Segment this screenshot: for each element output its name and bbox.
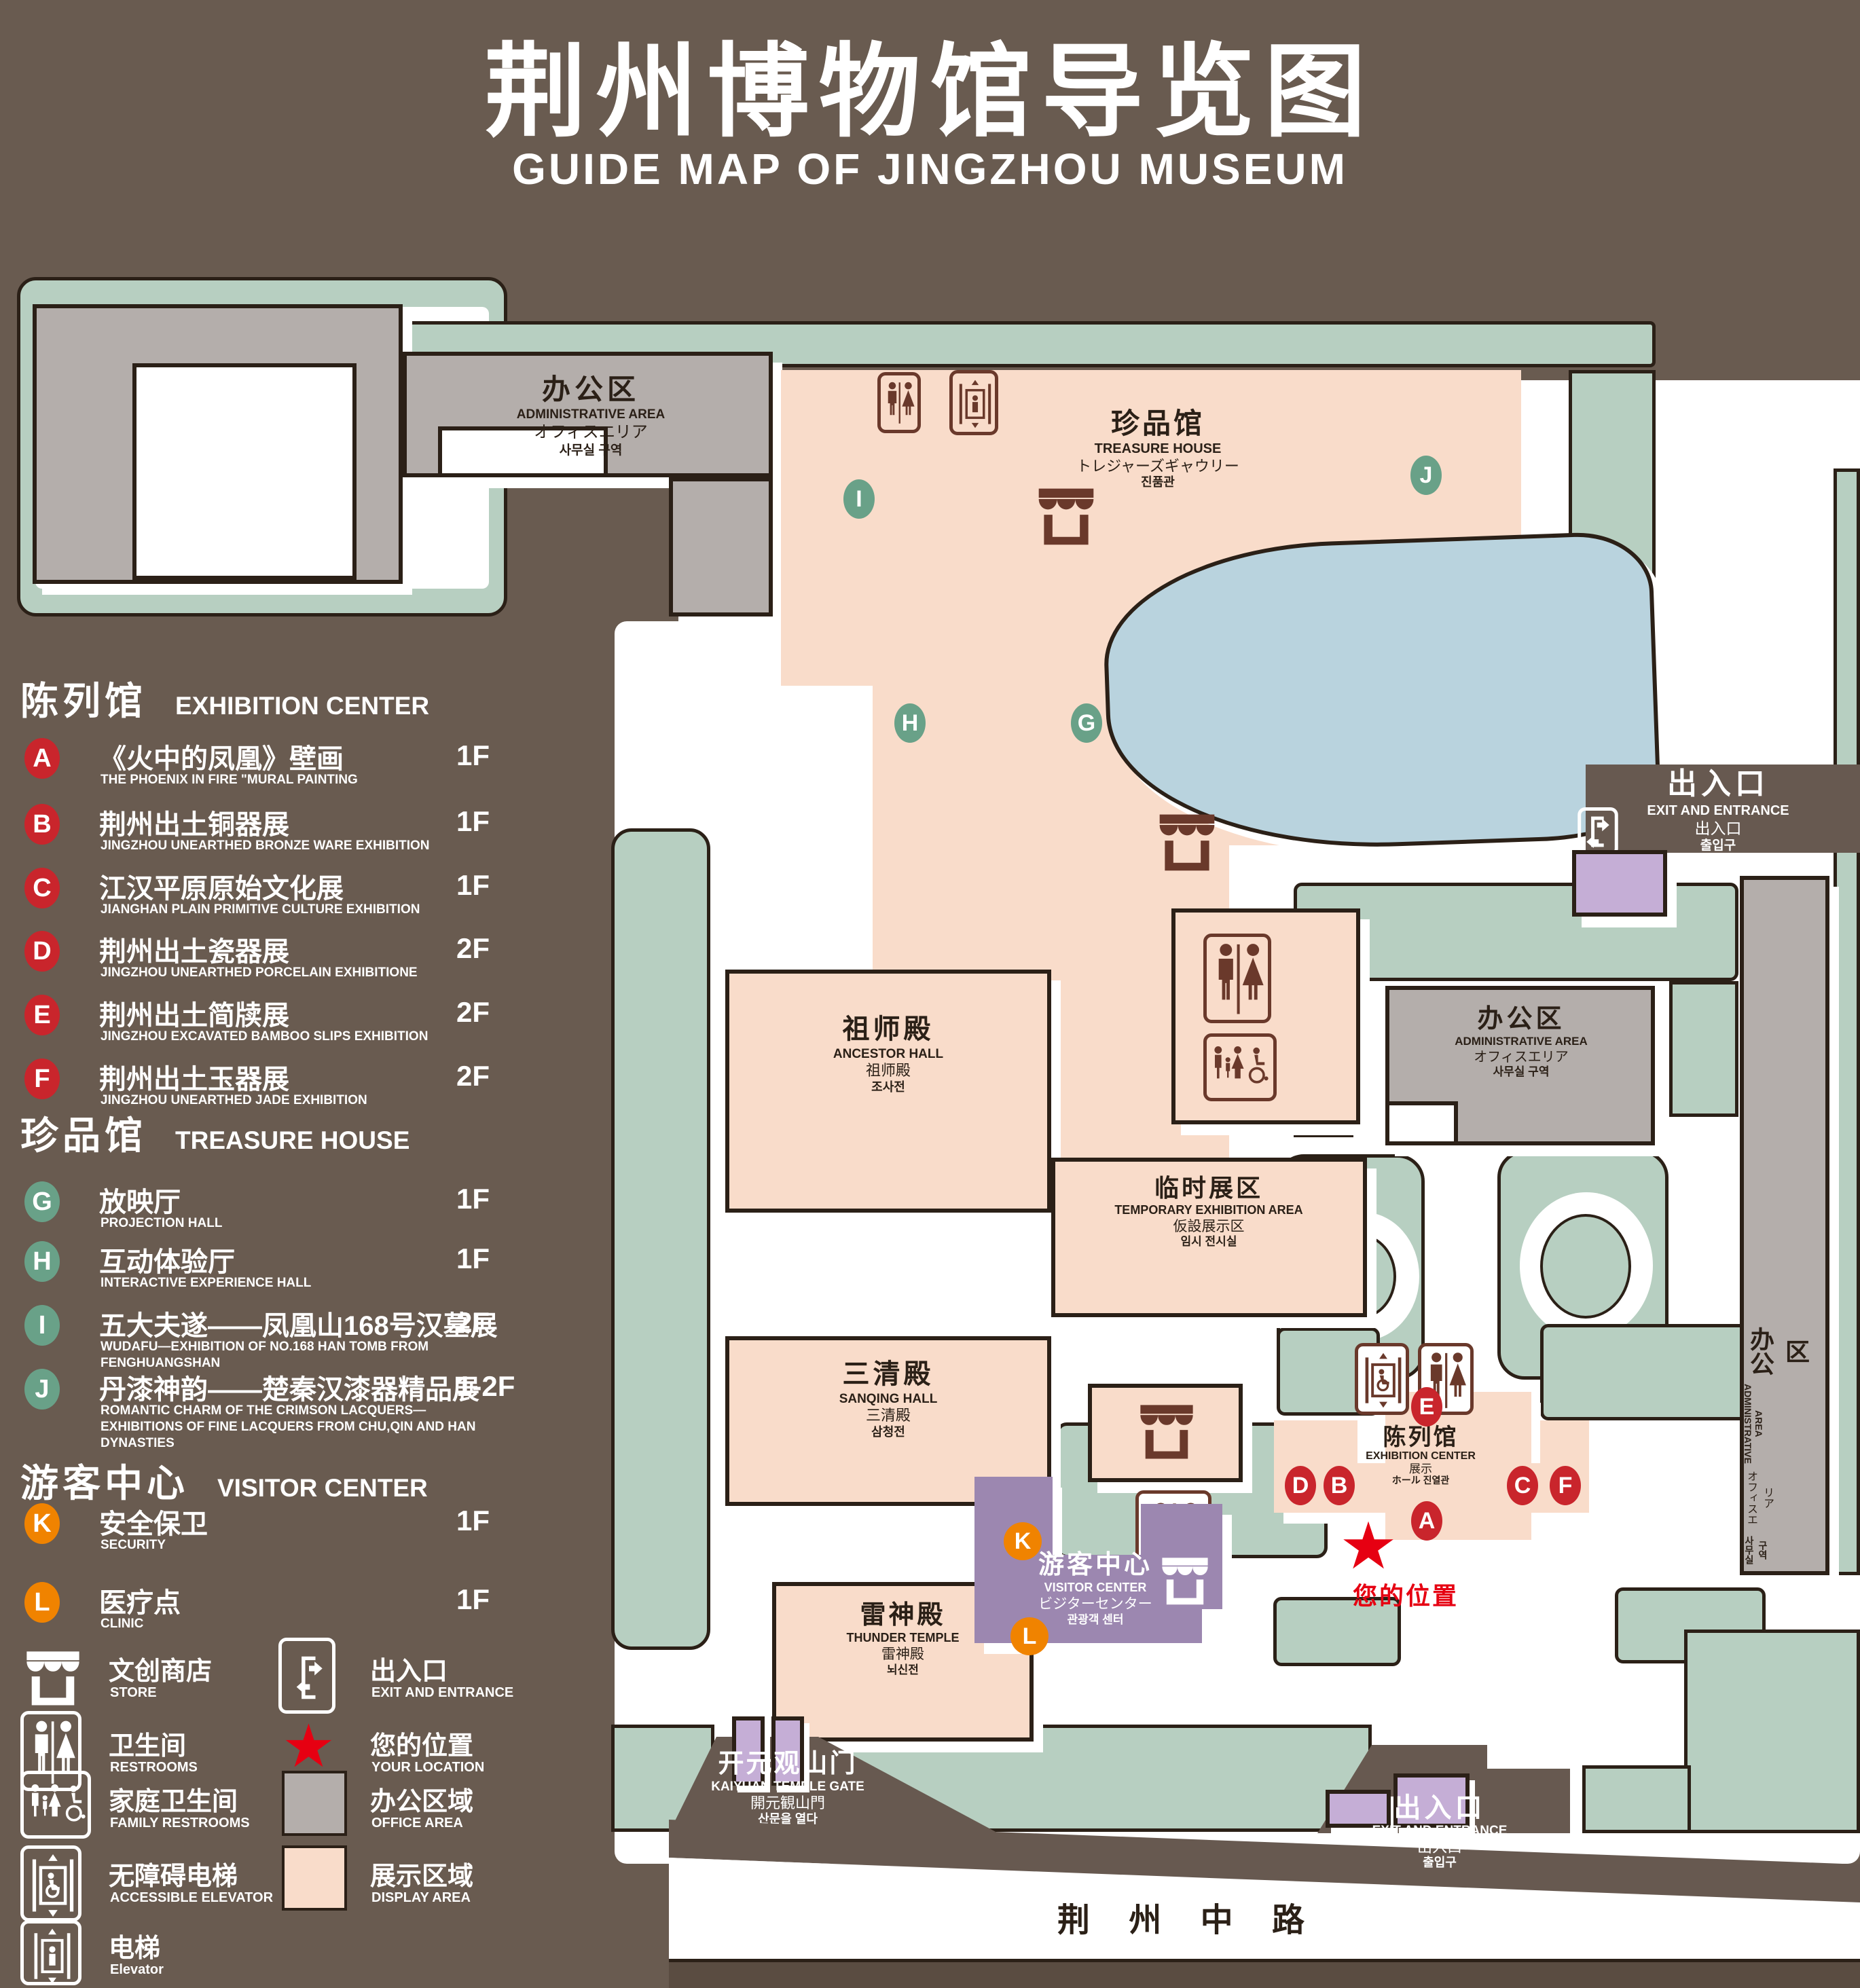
legend-section-treasure-header: 珍品馆TREASURE HOUSE [20,1105,409,1160]
building-admin-top-arm [669,477,773,616]
accessible-elevator-icon [1355,1343,1409,1415]
legend-item-b: B 荆州出土铜器展 JINGZHOU UNEARTHED BRONZE WARE… [20,803,523,868]
store-icon [1158,1553,1212,1608]
accessible-elevator-icon [20,1845,81,1921]
legend-item-i: I 五大夫遂——凤凰山168号汉墓展 WUDAFU—EXHIBITION OF … [20,1304,523,1369]
green-strip-admin-mid-top [1294,883,1738,981]
admin-top-label: 办公区 ADMINISTRATIVE AREA オフィスエリア 사무실 구역 [435,372,747,458]
marker-j: J [1410,456,1442,495]
marker-e: E [1411,1387,1442,1426]
gate-label: 开元观山门 KAIYUAN TEMPLE GATE 開元観山門 산문을 열다 [635,1749,941,1826]
legend-item-h: H 互动体验厅 INTERACTIVE EXPERIENCE HALL 1F [20,1240,523,1305]
green-bottom-right [1684,1630,1860,1833]
garden-island-right [1540,1214,1631,1319]
gate-block-top-exit [1572,850,1667,917]
family-restroom-icon [1203,1033,1277,1101]
green-bottom-right-2 [1582,1765,1691,1833]
path-top-right [1656,380,1860,625]
sanqing-label: 三清殿 SANQING HALL 三清殿 삼청전 [732,1358,1044,1440]
exit-icon [278,1638,335,1714]
ancestor-label: 祖师殿 ANCESTOR HALL 祖师殿 조사전 [732,1013,1044,1095]
location-star-icon: ★ [1339,1514,1398,1579]
exit-top-label: 出入口 EXIT AND ENTRANCE 出入口 출입구 [1616,766,1820,853]
store-icon [1034,483,1099,549]
elevator-icon [949,370,998,435]
legend-item-l: L 医疗点 CLINIC 1F [20,1581,523,1646]
family-restroom-icon [20,1771,91,1839]
marker-i: I [843,479,875,519]
treasure-label: 珍品馆 TREASURE HOUSE トレジャーズギャウリー 진품관 [1046,406,1270,490]
marker-h: H [894,703,926,743]
marker-l: L [1010,1617,1048,1655]
office-area-swatch [282,1771,347,1836]
page-subtitle: GUIDE MAP OF JINGZHOU MUSEUM [0,144,1860,194]
legend-section-exhibition-header: 陈列馆EXHIBITION CENTER [20,671,429,726]
admin-right-label: 办公区 ADMINISTRATIVE AREA オフィスエリア 사무실 구역 [1743,1324,1827,1568]
restroom-icon [1203,934,1271,1023]
restroom-icon [877,372,921,433]
location-star-icon: ★ [282,1716,335,1776]
legend-item-e: E 荆州出土简牍展 JINGZHOU EXCAVATED BAMBOO SLIP… [20,993,523,1059]
marker-b: B [1324,1466,1355,1505]
legend-item-d: D 荆州出土瓷器展 JINGZHOU UNEARTHED PORCELAIN E… [20,929,523,995]
legend-item-k: K 安全保卫 SECURITY 1F [20,1502,523,1567]
store-icon [1135,1400,1198,1462]
road-label: 荆 州 中 路 [985,1893,1392,1940]
store-icon [1154,809,1220,875]
exit-bottom-label: 出入口 EXIT AND ENTRANCE 出入口 출입구 [1331,1792,1548,1870]
legend-item-c: C 江汉平原原始文化展 JIANGHAN PLAIN PRIMITIVE CUL… [20,866,523,932]
marker-d: D [1285,1466,1316,1505]
temporary-label: 临时展区 TEMPORARY EXHIBITION AREA 仮設展示区 임시 … [1063,1173,1355,1249]
legend-item-j: J 丹漆神韵——楚秦汉漆器精品展 ROMANTIC CHARM OF THE C… [20,1367,523,1433]
admin-courtyard [132,363,357,580]
marker-a: A [1411,1501,1442,1541]
exhibition-label: 陈列馆 EXHIBITION CENTER 展示 ホール 진열관 [1326,1424,1516,1486]
marker-c: C [1507,1466,1538,1505]
elevator-icon [20,1920,81,1985]
marker-f: F [1550,1466,1581,1505]
admin-mid-label: 办公区 ADMINISTRATIVE AREA オフィスエリア 사무실 구역 [1409,1004,1633,1080]
marker-k: K [1004,1522,1042,1560]
green-strip-far-right [1834,468,1860,1575]
legend-section-visitor-header: 游客中心VISITOR CENTER [20,1453,428,1508]
your-location-label: 您的位置 [1311,1577,1501,1612]
legend-item-a: A 《火中的凤凰》壁画 THE PHOENIX IN FIRE "MURAL P… [20,737,523,802]
page-title: 荆州博物馆导览图 [0,10,1860,157]
admin-mid-notch [1385,1101,1458,1145]
display-area-swatch [282,1845,347,1911]
green-exhibition-tr [1540,1324,1764,1420]
marker-g: G [1071,703,1102,743]
green-admin-mid-right [1669,981,1738,1117]
legend-item-g: G 放映厅 PROJECTION HALL 1F [20,1180,523,1245]
bottom-strip [669,1959,1860,1988]
store-icon [20,1646,88,1712]
green-column-left [611,828,710,1650]
